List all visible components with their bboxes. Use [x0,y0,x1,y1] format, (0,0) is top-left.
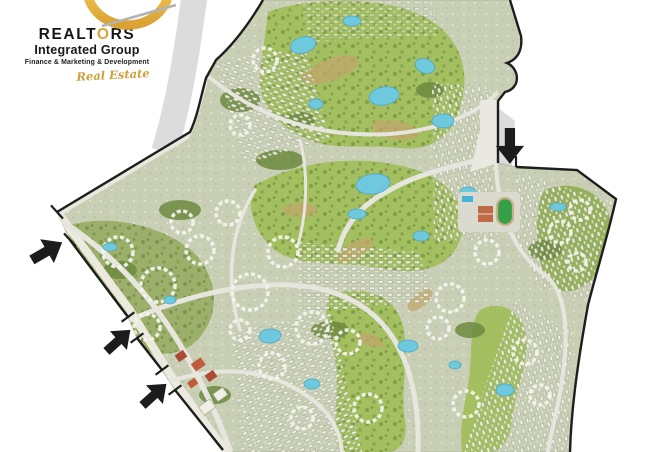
entrance-arrow-west [25,231,69,272]
brand-script-text: Real Estate [64,65,163,84]
stadium-field [497,198,513,225]
pool [462,196,473,202]
master-plan-screenshot: REALTORS Integrated Group Finance & Mark… [0,0,668,452]
brand-subtitle: Integrated Group [12,44,162,57]
brand-tagline: Finance & Marketing & Development [12,59,162,66]
logo: REALTORS Integrated Group Finance & Mark… [12,0,162,82]
logo-mark-icon [76,0,186,30]
sports-complex [458,192,520,232]
